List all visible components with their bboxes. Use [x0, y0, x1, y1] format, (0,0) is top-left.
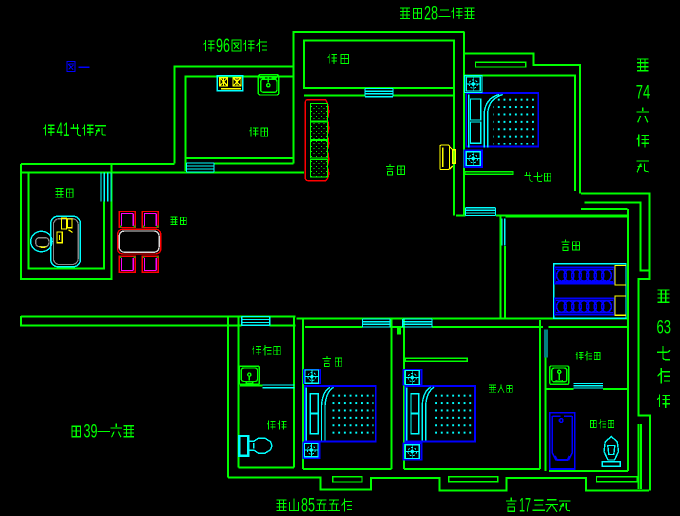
svg-text:85: 85 — [301, 496, 315, 516]
svg-text:17: 17 — [519, 496, 531, 516]
svg-text:39: 39 — [84, 422, 98, 443]
svg-text:74: 74 — [636, 83, 651, 104]
svg-text:41: 41 — [57, 120, 70, 141]
svg-text:63: 63 — [657, 318, 672, 339]
svg-text:96: 96 — [216, 36, 230, 57]
svg-text:28: 28 — [424, 4, 438, 25]
